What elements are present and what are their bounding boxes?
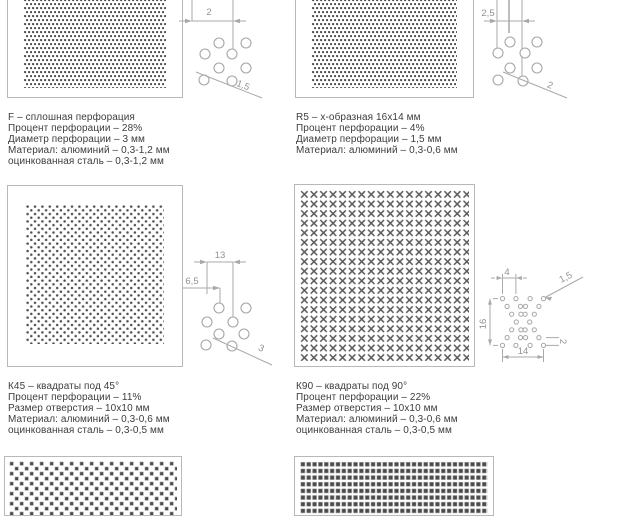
dim-label-pitch-r5: 2,5 (481, 8, 494, 19)
hole-cluster-f (199, 38, 251, 86)
dim-label-width-k90: 14 (518, 346, 529, 357)
perforation-pattern-k45-squares (9, 461, 177, 515)
dimension-diagram-k90: 4 16 1,5 (483, 266, 611, 372)
dimension-diagram-r5: 2,5 2 (478, 0, 596, 108)
hole-cluster-r5 (493, 37, 542, 86)
dimension-diagram-f: 2 1,5 (168, 0, 290, 108)
sample-panel-r5 (295, 0, 474, 98)
dim-label-top-k90: 4 (504, 267, 509, 278)
sample-panel-k90 (294, 184, 475, 367)
dim-label-diameter-k45: 3 (256, 343, 265, 355)
perforation-pattern-f (24, 0, 166, 88)
sample-panel-k45 (7, 185, 183, 367)
dim-label-width-k45: 13 (215, 250, 226, 261)
dim-label-half-k45: 6,5 (185, 276, 198, 287)
spec-line: Материал: алюминий – 0,3-1,2 мм (8, 146, 170, 157)
dim-label-diameter-f: 1,5 (235, 78, 251, 93)
caption-f: F – сплошная перфорация Процент перфорац… (8, 113, 170, 168)
sample-panel-k90-squares (294, 456, 494, 516)
spec-line: оцинкованная сталь – 0,3-1,2 мм (8, 157, 170, 168)
perforation-catalog-page: 2 1,5 2,5 2 F (0, 0, 634, 493)
dim-label-pitch-f: 2 (206, 7, 211, 18)
perforation-pattern-k90-squares (300, 461, 488, 515)
spec-line: Материал: алюминий – 0,3-0,6 мм (296, 415, 458, 426)
caption-k45: К45 – квадраты под 45° Процент перфораци… (8, 382, 170, 437)
perforation-pattern-r5 (312, 0, 457, 88)
dim-label-height-k90: 16 (478, 319, 489, 330)
spec-line: Материал: алюминий – 0,3-0,6 мм (296, 146, 458, 157)
sample-panel-k45-squares (4, 456, 182, 516)
spec-line: Материал: алюминий – 0,3-0,6 мм (8, 415, 170, 426)
dim-label-diameter-r5: 2 (545, 80, 554, 92)
caption-k90: К90 – квадраты под 90° Процент перфораци… (296, 382, 458, 437)
perforation-pattern-k45 (26, 205, 164, 344)
sample-panel-f (7, 0, 183, 98)
perforation-pattern-k90 (300, 190, 469, 361)
hole-cluster-x-k90 (500, 297, 545, 348)
spec-line: оцинкованная сталь – 0,3-0,5 мм (296, 426, 458, 437)
caption-r5: R5 – x-образная 16x14 мм Процент перфора… (296, 113, 458, 157)
spec-line: оцинкованная сталь – 0,3-0,5 мм (8, 426, 170, 437)
dim-label-spacing-k90: 2 (557, 339, 568, 344)
dimension-diagram-k45: 13 6,5 3 (180, 248, 292, 374)
